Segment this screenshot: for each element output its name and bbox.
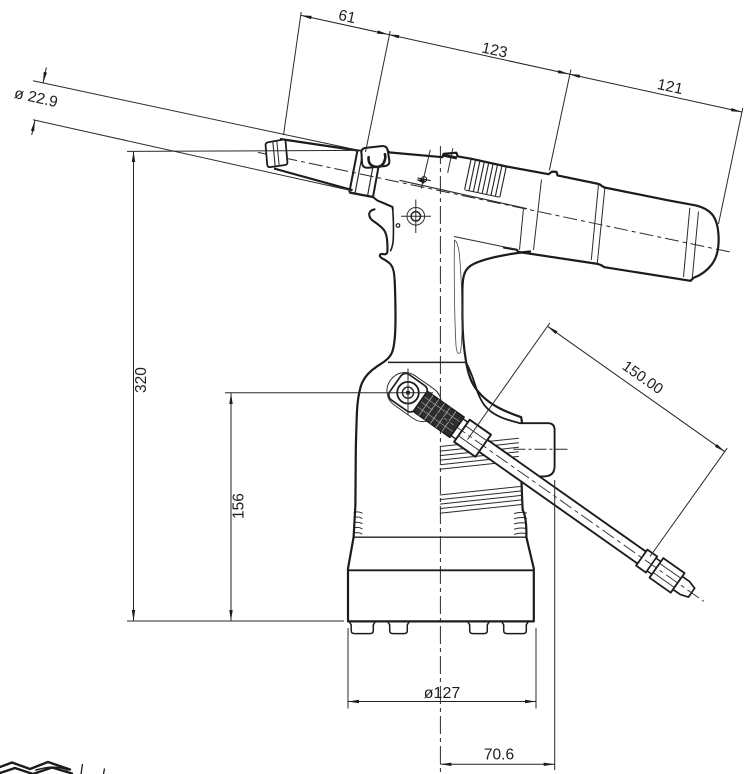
- svg-text:61: 61: [337, 7, 357, 27]
- svg-text:320: 320: [133, 367, 150, 393]
- svg-text:70.6: 70.6: [484, 747, 514, 764]
- svg-text:ø127: ø127: [424, 685, 461, 702]
- svg-text:156: 156: [231, 493, 248, 519]
